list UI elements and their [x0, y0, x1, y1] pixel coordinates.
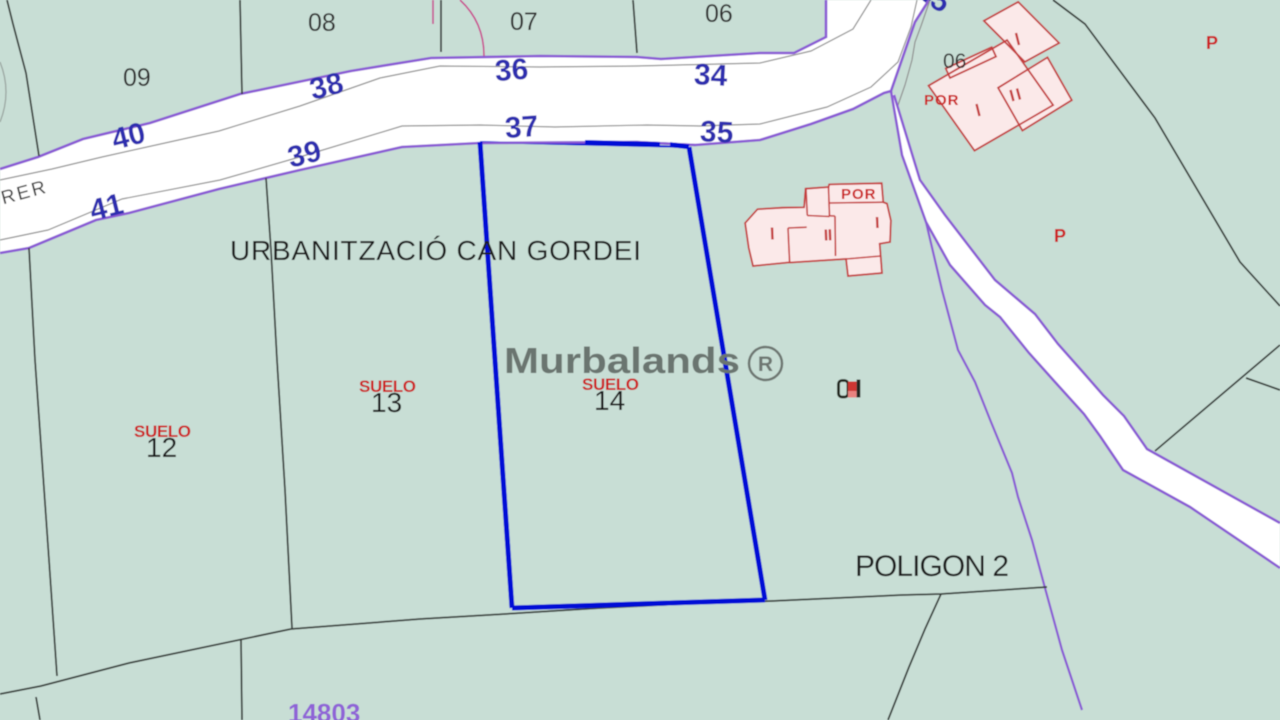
- svg-text:09: 09: [123, 64, 151, 92]
- svg-text:36: 36: [494, 53, 530, 88]
- svg-text:06: 06: [705, 0, 733, 28]
- svg-text:13: 13: [371, 387, 402, 418]
- svg-text:14: 14: [594, 385, 625, 416]
- svg-text:URBANITZACIÓ CAN GORDEI: URBANITZACIÓ CAN GORDEI: [230, 235, 641, 266]
- svg-text:14803: 14803: [288, 698, 360, 720]
- svg-text:P: P: [1054, 226, 1066, 246]
- svg-text:35: 35: [699, 115, 734, 150]
- svg-text:06: 06: [943, 50, 966, 73]
- svg-text:12: 12: [146, 432, 177, 463]
- svg-text:37: 37: [504, 110, 540, 145]
- svg-text:P: P: [1206, 33, 1218, 53]
- svg-text:POR: POR: [924, 92, 960, 109]
- svg-text:R: R: [758, 353, 773, 376]
- svg-text:POR: POR: [841, 186, 877, 203]
- svg-text:08: 08: [308, 9, 336, 37]
- svg-text:POLIGON 2: POLIGON 2: [855, 550, 1009, 583]
- svg-text:34: 34: [693, 58, 728, 93]
- svg-text:Murbalands: Murbalands: [504, 340, 740, 381]
- svg-text:07: 07: [510, 8, 538, 36]
